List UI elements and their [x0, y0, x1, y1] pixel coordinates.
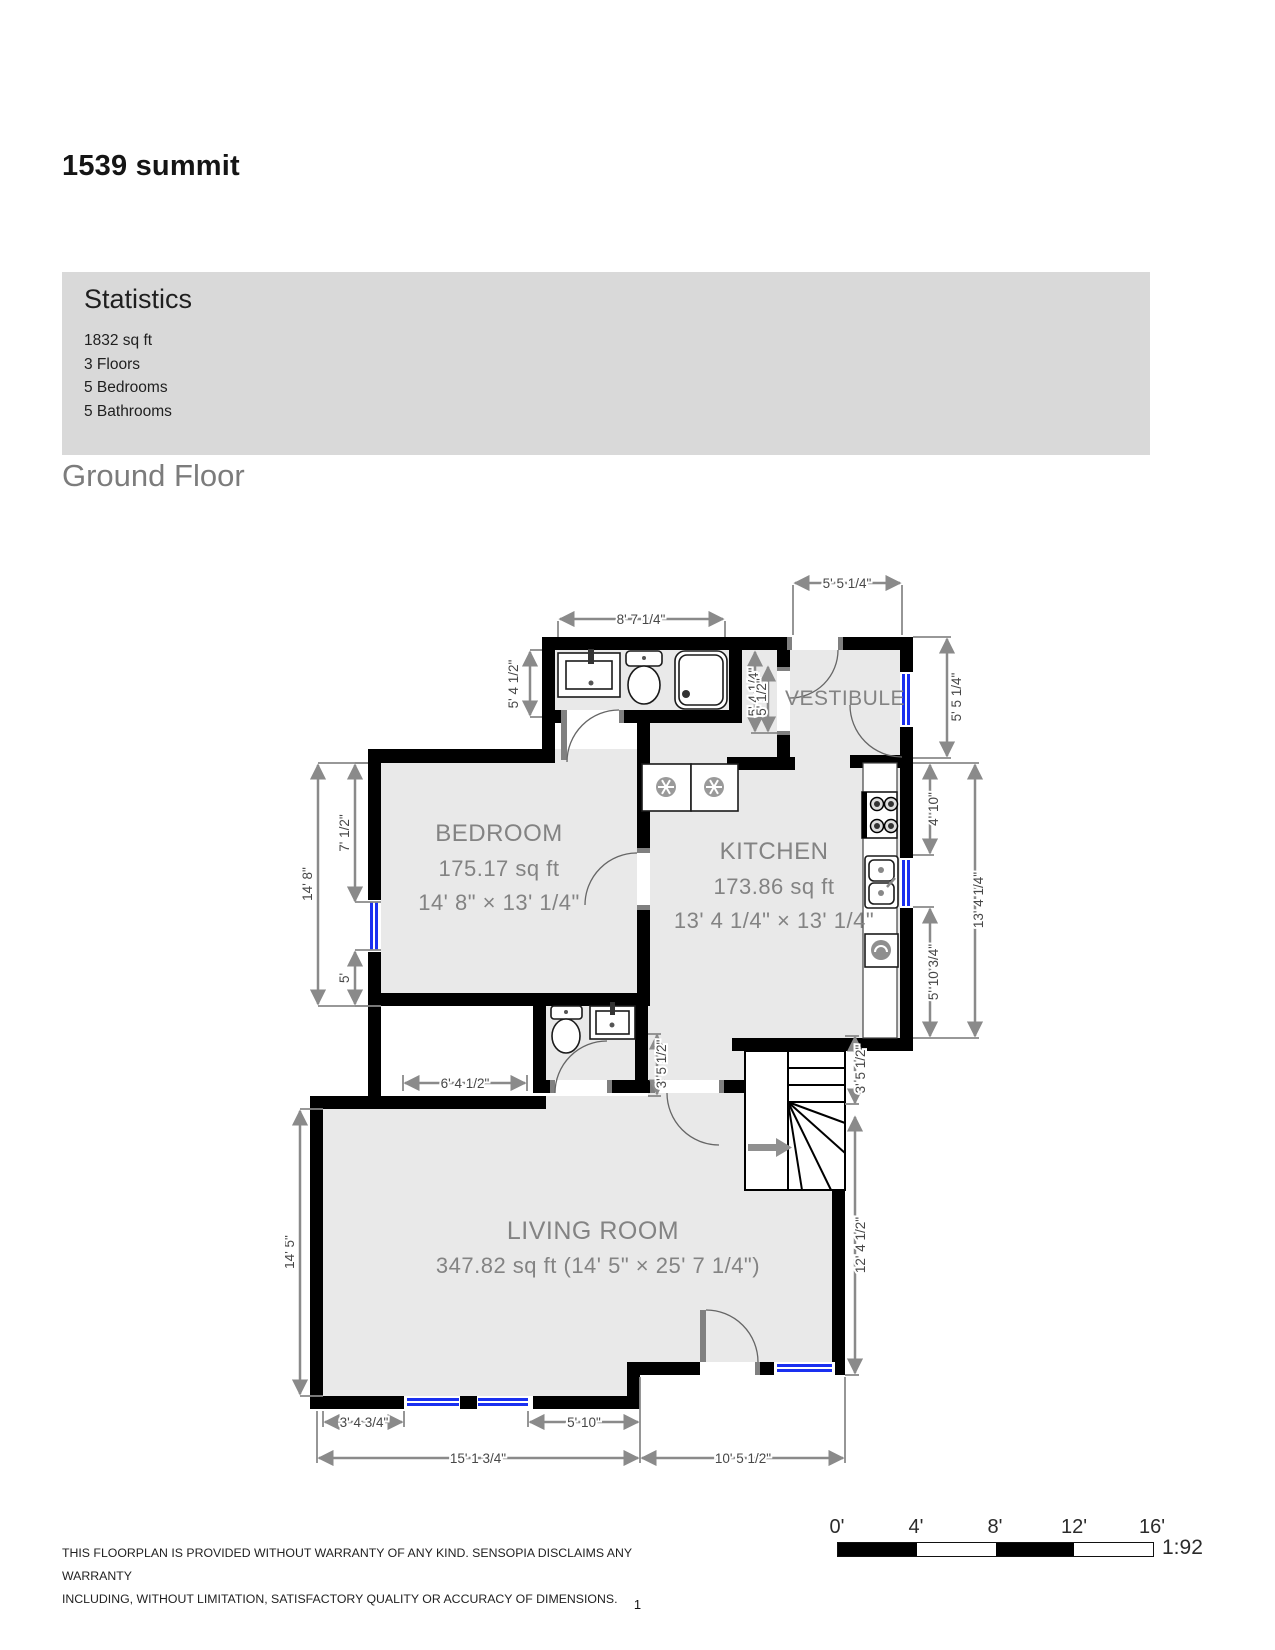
stat-area: 1832 sq ft: [84, 329, 1150, 353]
scale-ratio: 1:92: [1162, 1536, 1203, 1560]
scale-tick-0: 0': [815, 1516, 859, 1539]
dim-kitchen-right-full: 13' 4 1/4": [971, 872, 986, 928]
dim-living-left: 14' 5": [285, 1235, 297, 1269]
faucet-icon: [610, 1002, 615, 1015]
room-area-kitchen: 173.86 sq ft: [714, 874, 835, 899]
room-area-bedroom: 175.17 sq ft: [439, 856, 560, 881]
section-heading: Ground Floor: [62, 458, 245, 494]
stat-bedrooms: 5 Bedrooms: [84, 376, 1150, 400]
snowflake-icon: [656, 777, 676, 797]
room-dims-bedroom: 14' 8" × 13' 1/4": [418, 890, 580, 915]
room-area-living: 347.82 sq ft (14' 5" × 25' 7 1/4"): [436, 1253, 760, 1278]
disclaimer-line-1: THIS FLOORPLAN IS PROVIDED WITHOUT WARRA…: [62, 1542, 702, 1588]
floorplan-drawing: 8' 7 1/4" 5' 5 1/4" 3' 4 3/4" 5' 10" 15'…: [285, 545, 1000, 1475]
snowflake-icon: [704, 777, 724, 797]
floorplan-page: { "page": { "title": "1539 summit", "pag…: [0, 0, 1275, 1650]
scale-bar: 0' 4' 8' 12' 16' 1:92: [830, 1516, 1230, 1566]
faucet-icon: [588, 649, 594, 664]
dim-bottom-right: 10' 5 1/2": [715, 1451, 771, 1466]
stat-floors: 3 Floors: [84, 353, 1150, 377]
dim-kitchen-right-top: 4' 10": [926, 792, 941, 826]
dim-hall-overlap-b: 5' 1/2": [754, 678, 769, 716]
dim-vest-right: 5' 5 1/4": [949, 672, 964, 721]
window-mullion: [460, 1396, 477, 1409]
dim-window-mid: 5' 10": [567, 1415, 601, 1430]
room-label-kitchen: KITCHEN: [720, 838, 829, 865]
scale-tick-12: 12': [1052, 1516, 1096, 1539]
dim-vest-top: 5' 5 1/4": [823, 576, 872, 591]
dim-bedroom-left-top: 7' 1/2": [337, 814, 352, 852]
room-label-living: LIVING ROOM: [507, 1217, 679, 1245]
scale-tick-4: 4': [894, 1516, 938, 1539]
room-label-vestibule: VESTIBULE: [785, 687, 905, 710]
scale-bar-strip: [837, 1542, 1154, 1557]
dim-hall-left: 3' 5 1/2": [654, 1039, 669, 1088]
dim-bedroom-left-bottom: 5': [337, 973, 352, 983]
dim-closet: 6' 4 1/2": [441, 1076, 490, 1091]
dim-kitchen-right-bottom: 5' 10 3/4": [926, 944, 941, 1000]
statistics-list: 1832 sq ft 3 Floors 5 Bedrooms 5 Bathroo…: [62, 329, 1150, 423]
dim-bedroom-left-full: 14' 8": [300, 867, 315, 901]
statistics-box: Statistics 1832 sq ft 3 Floors 5 Bedroom…: [62, 272, 1150, 455]
scale-tick-8: 8': [973, 1516, 1017, 1539]
dim-window-offset: 3' 4 3/4": [340, 1415, 389, 1430]
dim-bath-top: 8' 7 1/4": [617, 612, 666, 627]
page-title: 1539 summit: [62, 150, 240, 183]
page-number: 1: [0, 1597, 1275, 1612]
room-dims-kitchen: 13' 4 1/4" × 13' 1/4": [674, 908, 874, 933]
stat-bathrooms: 5 Bathrooms: [84, 400, 1150, 424]
dim-bath-left: 5' 4 1/2": [506, 659, 521, 708]
statistics-heading: Statistics: [62, 272, 1150, 315]
dim-bottom-left: 15' 1 3/4": [450, 1451, 506, 1466]
staircase: [745, 1051, 845, 1190]
room-label-bedroom: BEDROOM: [435, 820, 563, 847]
dim-hall-right: 3' 5 1/2": [853, 1044, 868, 1093]
dim-living-right: 12' 4 1/2": [853, 1217, 868, 1273]
